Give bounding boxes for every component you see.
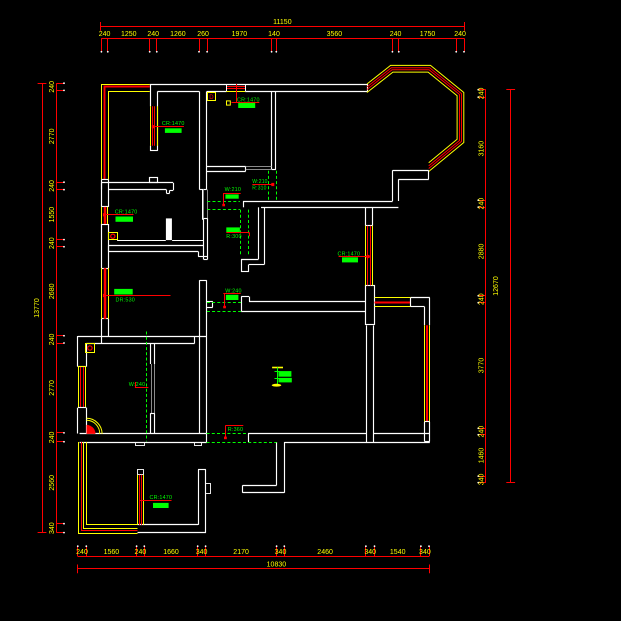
svg-text:W:240: W:240: [129, 382, 145, 388]
svg-text:240: 240: [76, 549, 88, 556]
svg-text:DR:530: DR:530: [116, 298, 135, 304]
svg-text:2770: 2770: [49, 128, 56, 144]
svg-text:1460: 1460: [479, 448, 486, 464]
svg-text:240: 240: [479, 87, 486, 99]
svg-text:240: 240: [479, 198, 486, 210]
svg-text:2170: 2170: [233, 549, 249, 556]
svg-text:340: 340: [196, 549, 208, 556]
svg-text:1970: 1970: [232, 31, 248, 38]
svg-text:240: 240: [147, 31, 159, 38]
svg-text:R:360: R:360: [228, 427, 243, 433]
svg-text:2880: 2880: [479, 244, 486, 260]
svg-text:340: 340: [419, 549, 431, 556]
svg-text:1660: 1660: [163, 549, 179, 556]
svg-text:240: 240: [49, 431, 56, 443]
svg-text:240: 240: [49, 180, 56, 192]
svg-text:240: 240: [49, 81, 56, 93]
svg-text:1560: 1560: [104, 549, 120, 556]
svg-text:340: 340: [364, 549, 376, 556]
svg-text:3560: 3560: [327, 31, 343, 38]
svg-text:1540: 1540: [390, 549, 406, 556]
svg-text:3160: 3160: [479, 141, 486, 157]
svg-text:2460: 2460: [317, 549, 333, 556]
svg-text:240: 240: [454, 31, 466, 38]
svg-text:240: 240: [479, 293, 486, 305]
svg-text:1260: 1260: [170, 31, 186, 38]
svg-text:1250: 1250: [121, 31, 137, 38]
svg-text:2560: 2560: [49, 475, 56, 491]
svg-text:R:300: R:300: [226, 234, 241, 240]
svg-text:10830: 10830: [267, 562, 287, 569]
svg-text:2770: 2770: [49, 380, 56, 396]
svg-text:W:210: W:210: [225, 187, 241, 193]
svg-text:240: 240: [390, 31, 402, 38]
svg-text:240: 240: [135, 549, 147, 556]
svg-text:D: D: [209, 95, 214, 101]
svg-text:3770: 3770: [479, 358, 486, 374]
svg-text:13770: 13770: [34, 298, 41, 318]
svg-text:12670: 12670: [493, 276, 500, 296]
svg-text:140: 140: [268, 31, 280, 38]
svg-text:1550: 1550: [49, 207, 56, 223]
svg-text:2680: 2680: [49, 283, 56, 299]
svg-text:1750: 1750: [420, 31, 436, 38]
svg-text:11150: 11150: [273, 19, 292, 26]
svg-text:240: 240: [99, 31, 111, 38]
svg-text:260: 260: [197, 31, 209, 38]
svg-text:340: 340: [49, 522, 56, 534]
svg-text:240: 240: [479, 426, 486, 438]
svg-text:R:310: R:310: [252, 186, 266, 192]
svg-text:240: 240: [49, 333, 56, 345]
svg-text:340: 340: [275, 549, 287, 556]
svg-text:240: 240: [49, 237, 56, 249]
svg-text:340: 340: [479, 473, 486, 485]
